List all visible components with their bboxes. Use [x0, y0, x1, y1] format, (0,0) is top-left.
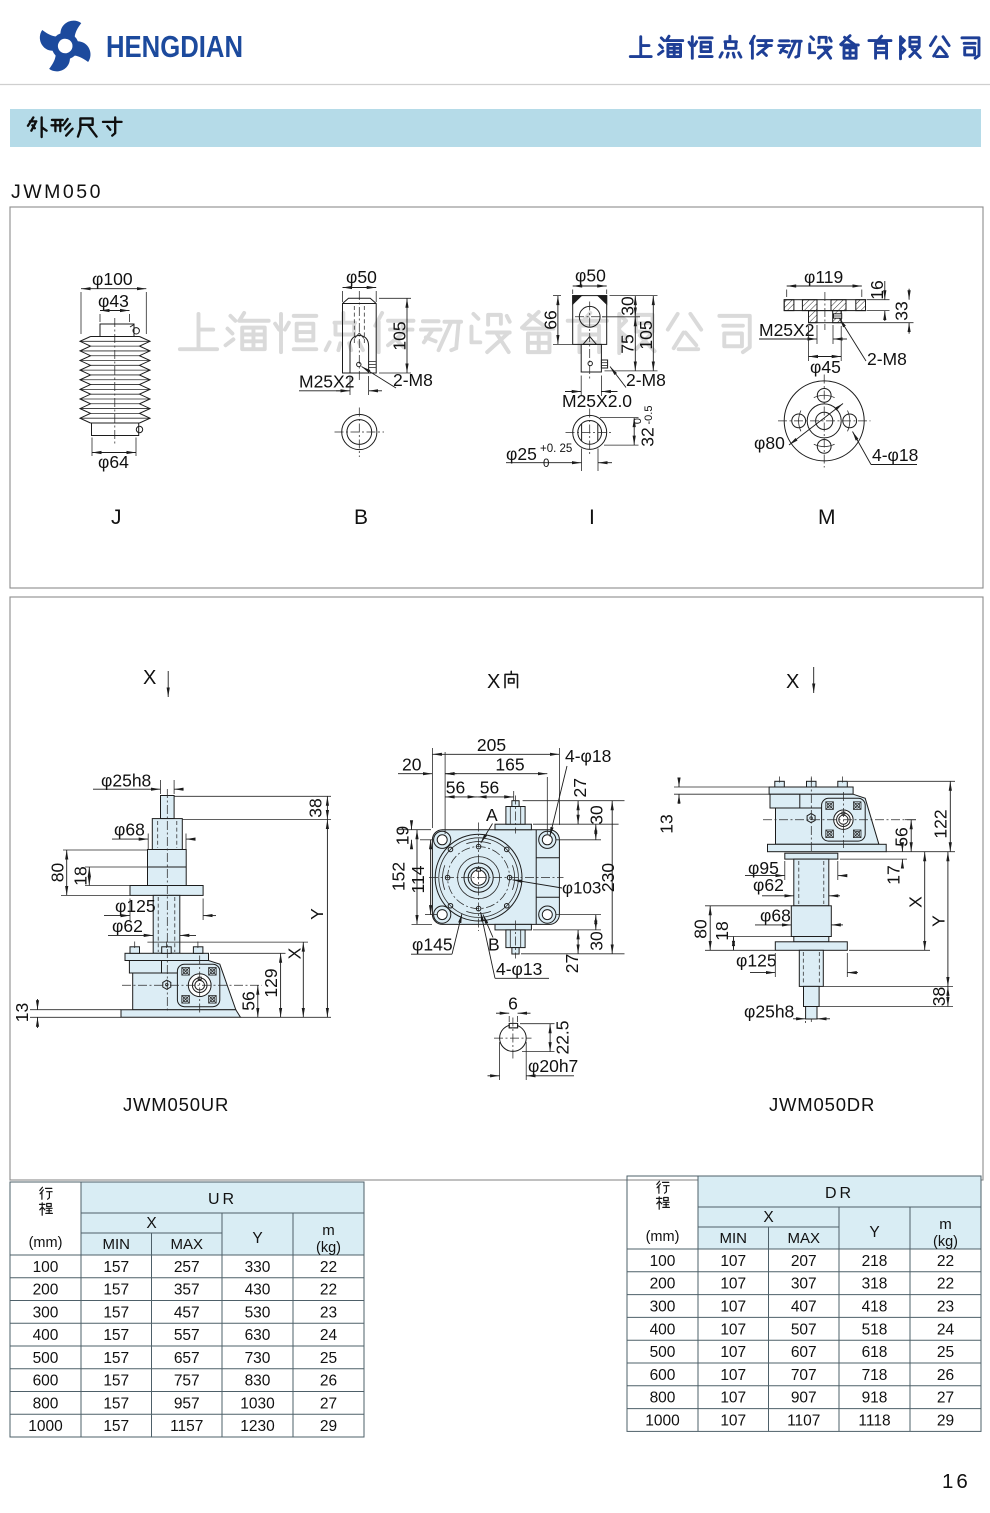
- svg-text:φ80: φ80: [754, 433, 785, 453]
- svg-text:φ43: φ43: [98, 291, 129, 311]
- svg-text:300: 300: [33, 1304, 59, 1321]
- svg-text:26: 26: [320, 1373, 337, 1390]
- svg-text:23: 23: [937, 1299, 954, 1316]
- svg-text:1000: 1000: [28, 1418, 63, 1435]
- svg-text:165: 165: [495, 755, 524, 775]
- svg-text:X: X: [487, 671, 500, 693]
- svg-text:907: 907: [791, 1390, 817, 1407]
- svg-text:407: 407: [791, 1299, 817, 1316]
- svg-text:957: 957: [174, 1395, 200, 1412]
- svg-text:657: 657: [174, 1350, 200, 1367]
- svg-text:107: 107: [720, 1367, 746, 1384]
- svg-text:1107: 1107: [787, 1413, 820, 1430]
- svg-text:MIN: MIN: [720, 1230, 748, 1247]
- svg-text:27: 27: [562, 954, 582, 973]
- svg-text:200: 200: [33, 1282, 59, 1299]
- svg-text:B: B: [354, 506, 368, 529]
- svg-text:330: 330: [245, 1259, 271, 1276]
- svg-text:φ68: φ68: [760, 906, 791, 926]
- svg-text:200: 200: [650, 1276, 676, 1293]
- svg-text:157: 157: [103, 1259, 129, 1276]
- svg-text:UR: UR: [208, 1191, 237, 1208]
- svg-text:(kg): (kg): [316, 1240, 341, 1256]
- svg-text:(kg): (kg): [933, 1234, 958, 1250]
- svg-text:718: 718: [862, 1367, 888, 1384]
- svg-text:22: 22: [937, 1276, 954, 1293]
- svg-text:157: 157: [103, 1304, 129, 1321]
- svg-text:56: 56: [239, 991, 259, 1010]
- svg-text:X: X: [906, 896, 926, 908]
- svg-text:157: 157: [103, 1395, 129, 1412]
- svg-text:2-M8: 2-M8: [626, 370, 666, 390]
- svg-text:φ25: φ25: [506, 444, 537, 464]
- svg-text:152: 152: [389, 862, 409, 891]
- svg-text:φ145: φ145: [412, 935, 453, 955]
- svg-text:φ103: φ103: [562, 879, 601, 898]
- svg-text:80: 80: [48, 863, 68, 883]
- svg-text:157: 157: [103, 1373, 129, 1390]
- svg-text:618: 618: [862, 1344, 888, 1361]
- svg-text:757: 757: [174, 1373, 200, 1390]
- svg-text:518: 518: [862, 1321, 888, 1338]
- svg-text:φ68: φ68: [114, 820, 145, 840]
- svg-text:6: 6: [508, 994, 518, 1014]
- svg-text:27: 27: [570, 778, 590, 797]
- svg-text:600: 600: [650, 1367, 676, 1384]
- svg-text:2-M8: 2-M8: [867, 349, 907, 369]
- svg-text:105: 105: [636, 320, 656, 349]
- svg-text:500: 500: [33, 1350, 59, 1367]
- svg-text:HENGDIAN: HENGDIAN: [106, 29, 243, 64]
- svg-text:13: 13: [657, 814, 677, 833]
- svg-text:107: 107: [720, 1344, 746, 1361]
- svg-text:25: 25: [320, 1350, 337, 1367]
- svg-text:30: 30: [618, 296, 638, 316]
- svg-text:307: 307: [791, 1276, 817, 1293]
- svg-text:33: 33: [892, 301, 912, 320]
- svg-text:56: 56: [480, 778, 499, 798]
- svg-text:M25X2: M25X2: [759, 320, 814, 340]
- svg-text:918: 918: [862, 1390, 888, 1407]
- svg-text:80: 80: [691, 919, 711, 939]
- svg-text:107: 107: [720, 1276, 746, 1293]
- svg-text:157: 157: [103, 1350, 129, 1367]
- svg-text:φ25h8: φ25h8: [744, 1002, 794, 1022]
- svg-text:φ125: φ125: [115, 896, 156, 916]
- svg-text:m: m: [322, 1222, 335, 1239]
- svg-text:23: 23: [320, 1304, 337, 1321]
- svg-text:m: m: [939, 1216, 952, 1233]
- svg-text:557: 557: [174, 1327, 200, 1344]
- svg-text:MAX: MAX: [170, 1236, 203, 1253]
- svg-text:X: X: [285, 947, 305, 959]
- svg-text:B: B: [488, 935, 500, 955]
- svg-text:100: 100: [650, 1253, 676, 1270]
- svg-text:800: 800: [33, 1395, 59, 1412]
- svg-text:29: 29: [937, 1413, 954, 1430]
- svg-text:Y: Y: [252, 1230, 262, 1247]
- svg-text:107: 107: [720, 1413, 746, 1430]
- svg-text:630: 630: [245, 1327, 271, 1344]
- svg-text:φ25h8: φ25h8: [101, 771, 151, 791]
- svg-text:100: 100: [33, 1259, 59, 1276]
- svg-text:400: 400: [33, 1327, 59, 1344]
- svg-text:27: 27: [937, 1390, 954, 1407]
- svg-text:107: 107: [720, 1299, 746, 1316]
- svg-text:507: 507: [791, 1321, 817, 1338]
- svg-text:18: 18: [71, 866, 91, 885]
- svg-text:φ62: φ62: [753, 875, 784, 895]
- svg-text:φ100: φ100: [92, 269, 133, 289]
- svg-text:(mm): (mm): [646, 1229, 680, 1245]
- svg-text:607: 607: [791, 1344, 817, 1361]
- svg-text:157: 157: [103, 1282, 129, 1299]
- svg-text:24: 24: [320, 1327, 338, 1344]
- svg-text:JWM050: JWM050: [11, 181, 103, 203]
- svg-text:2-M8: 2-M8: [393, 370, 433, 390]
- svg-text:600: 600: [33, 1373, 59, 1390]
- svg-text:1030: 1030: [240, 1395, 275, 1412]
- svg-text:22: 22: [320, 1259, 337, 1276]
- svg-text:800: 800: [650, 1390, 676, 1407]
- svg-text:φ50: φ50: [575, 266, 606, 286]
- svg-text:27: 27: [320, 1395, 337, 1412]
- svg-text:X: X: [143, 667, 156, 689]
- svg-text:38: 38: [306, 798, 326, 817]
- svg-text:26: 26: [937, 1367, 954, 1384]
- svg-text:JWM050UR: JWM050UR: [123, 1094, 229, 1115]
- svg-text:φ45: φ45: [810, 357, 841, 377]
- svg-text:Y: Y: [929, 915, 949, 927]
- svg-text:707: 707: [791, 1367, 817, 1384]
- svg-text:18: 18: [712, 921, 732, 940]
- svg-text:157: 157: [103, 1418, 129, 1435]
- svg-text:+0. 25: +0. 25: [540, 443, 572, 455]
- svg-text:20: 20: [402, 755, 422, 775]
- svg-text:530: 530: [245, 1304, 271, 1321]
- svg-text:105: 105: [390, 321, 410, 350]
- svg-text:Y: Y: [307, 908, 327, 920]
- svg-text:4-φ18: 4-φ18: [565, 746, 611, 766]
- svg-text:300: 300: [650, 1299, 676, 1316]
- svg-text:1118: 1118: [858, 1413, 890, 1430]
- svg-text:30: 30: [587, 805, 607, 825]
- svg-text:16: 16: [867, 280, 887, 299]
- svg-text:I: I: [589, 506, 595, 529]
- svg-text:257: 257: [174, 1259, 200, 1276]
- svg-text:418: 418: [862, 1299, 888, 1316]
- svg-text:457: 457: [174, 1304, 200, 1321]
- svg-text:114: 114: [408, 865, 428, 893]
- svg-text:107: 107: [720, 1321, 746, 1338]
- svg-text:0: 0: [543, 458, 549, 470]
- svg-text:(mm): (mm): [29, 1235, 63, 1251]
- svg-text:56: 56: [892, 827, 912, 846]
- svg-text:X: X: [786, 671, 799, 693]
- svg-text:1230: 1230: [240, 1418, 275, 1435]
- svg-text:24: 24: [937, 1321, 955, 1338]
- svg-text:Y: Y: [869, 1224, 879, 1241]
- svg-text:22.5: 22.5: [553, 1020, 573, 1054]
- svg-text:4-φ18: 4-φ18: [872, 445, 918, 465]
- svg-text:φ62: φ62: [112, 916, 143, 936]
- svg-text:φ50: φ50: [346, 267, 377, 287]
- svg-text:32: 32: [638, 427, 658, 446]
- svg-text:22: 22: [937, 1253, 954, 1270]
- svg-text:75: 75: [618, 334, 638, 353]
- svg-text:107: 107: [720, 1253, 746, 1270]
- svg-text:66: 66: [541, 310, 561, 329]
- svg-text:107: 107: [720, 1390, 746, 1407]
- svg-text:16: 16: [942, 1470, 971, 1493]
- svg-text:29: 29: [320, 1418, 337, 1435]
- svg-text:MAX: MAX: [787, 1230, 820, 1247]
- svg-text:207: 207: [791, 1253, 817, 1270]
- svg-text:357: 357: [174, 1282, 200, 1299]
- svg-text:38: 38: [929, 987, 949, 1006]
- svg-text:830: 830: [245, 1373, 271, 1390]
- svg-text:-0.5: -0.5: [643, 406, 655, 425]
- svg-text:JWM050DR: JWM050DR: [769, 1094, 875, 1115]
- svg-text:A: A: [486, 805, 498, 825]
- svg-text:30: 30: [587, 931, 607, 951]
- svg-text:X: X: [146, 1215, 157, 1232]
- svg-text:22: 22: [320, 1282, 337, 1299]
- svg-text:157: 157: [103, 1327, 129, 1344]
- svg-text:129: 129: [261, 968, 281, 997]
- svg-text:φ119: φ119: [804, 267, 843, 287]
- svg-text:730: 730: [245, 1350, 271, 1367]
- svg-text:430: 430: [245, 1282, 271, 1299]
- svg-text:M25X2.0: M25X2.0: [562, 391, 632, 411]
- svg-text:1157: 1157: [170, 1418, 203, 1435]
- svg-text:218: 218: [862, 1253, 888, 1270]
- svg-text:122: 122: [931, 809, 951, 838]
- svg-text:56: 56: [446, 778, 465, 798]
- svg-text:4-φ13: 4-φ13: [496, 959, 542, 979]
- svg-text:13: 13: [12, 1003, 32, 1022]
- svg-text:400: 400: [650, 1321, 676, 1338]
- svg-text:500: 500: [650, 1344, 676, 1361]
- svg-text:1000: 1000: [645, 1413, 680, 1430]
- svg-text:17: 17: [884, 865, 904, 884]
- svg-text:25: 25: [937, 1344, 954, 1361]
- svg-text:φ64: φ64: [98, 452, 129, 472]
- svg-text:19: 19: [393, 826, 413, 845]
- svg-text:318: 318: [862, 1276, 888, 1293]
- svg-text:DR: DR: [825, 1185, 854, 1202]
- svg-text:X: X: [763, 1209, 774, 1226]
- svg-text:φ20h7: φ20h7: [528, 1056, 578, 1076]
- svg-text:J: J: [111, 506, 122, 529]
- svg-text:MIN: MIN: [103, 1236, 131, 1253]
- svg-text:M25X2: M25X2: [299, 372, 354, 392]
- svg-text:205: 205: [477, 735, 506, 755]
- svg-text:φ125: φ125: [736, 951, 777, 971]
- svg-text:M: M: [818, 506, 836, 529]
